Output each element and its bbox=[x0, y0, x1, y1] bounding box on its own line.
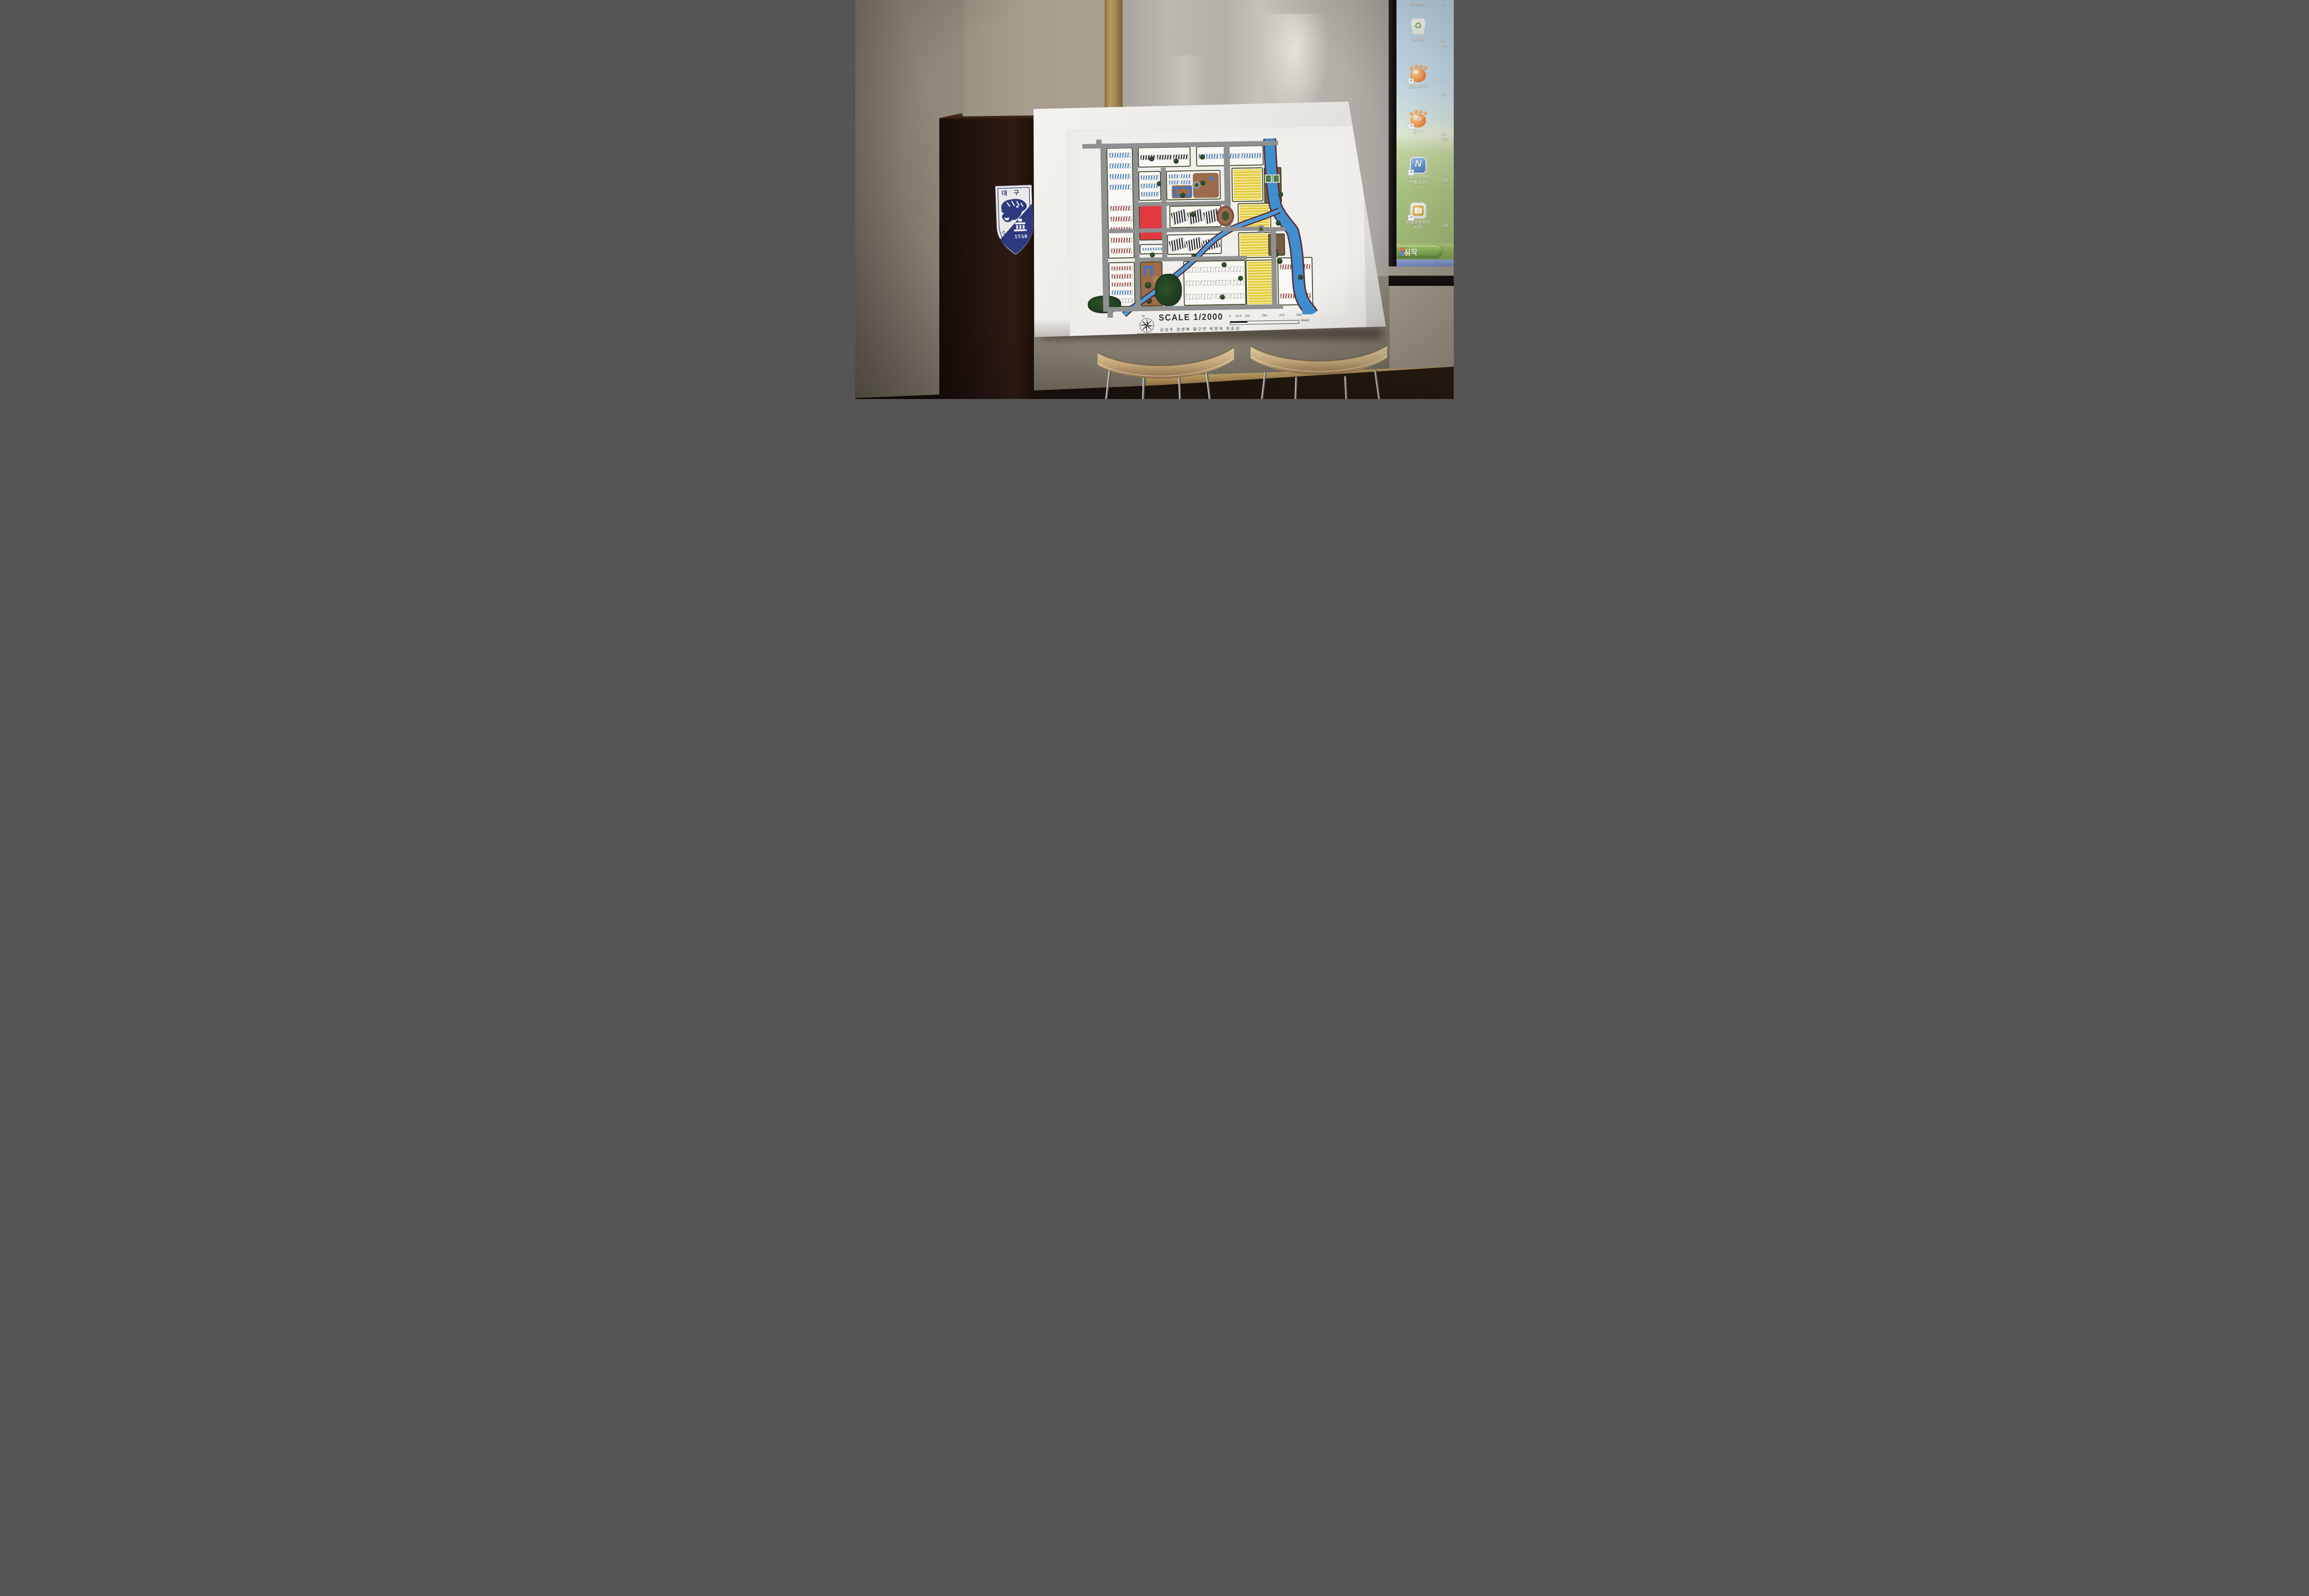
checker-segment bbox=[1230, 323, 1247, 325]
projection-haze bbox=[1396, 0, 1454, 266]
road bbox=[1265, 227, 1286, 231]
map-block-forest-hill bbox=[1155, 273, 1182, 306]
presentation-board: N SCALE 1/2000 김성주 권영복 황규연 박영재 최호권 062.5… bbox=[1034, 102, 1386, 337]
projected-desktop: Explorer♻휴지통↗곰플레이어TV↗곰TVN↗한글과컴퓨터넥셀 2007↗… bbox=[1396, 0, 1454, 266]
scale-bar: 062.5125250375500 bbox=[1230, 314, 1300, 332]
scale-bar-checker bbox=[1230, 320, 1299, 325]
road bbox=[1107, 312, 1113, 318]
emblem-top-text: 대구 bbox=[1002, 189, 1026, 197]
scale-unit-label: Meter bbox=[1301, 319, 1309, 322]
screen-lower-panel bbox=[1389, 266, 1454, 277]
university-emblem: 대구 1956 TAEGU UNIVER bbox=[992, 181, 1037, 258]
stool-seat-left bbox=[1093, 344, 1239, 388]
sports-court bbox=[1265, 175, 1272, 183]
stool-seat-right bbox=[1247, 340, 1391, 384]
sports-court bbox=[1273, 175, 1280, 183]
site-plan-poster: N SCALE 1/2000 김성주 권영복 황규연 박영재 최호권 062.5… bbox=[1067, 126, 1366, 339]
photo-classroom-scene: Explorer♻휴지통↗곰플레이어TV↗곰TVN↗한글과컴퓨터넥셀 2007↗… bbox=[855, 0, 1454, 399]
site-plan-map bbox=[1078, 135, 1348, 318]
screen-bottom-frame bbox=[1389, 276, 1454, 286]
screen-frame bbox=[1389, 0, 1396, 276]
